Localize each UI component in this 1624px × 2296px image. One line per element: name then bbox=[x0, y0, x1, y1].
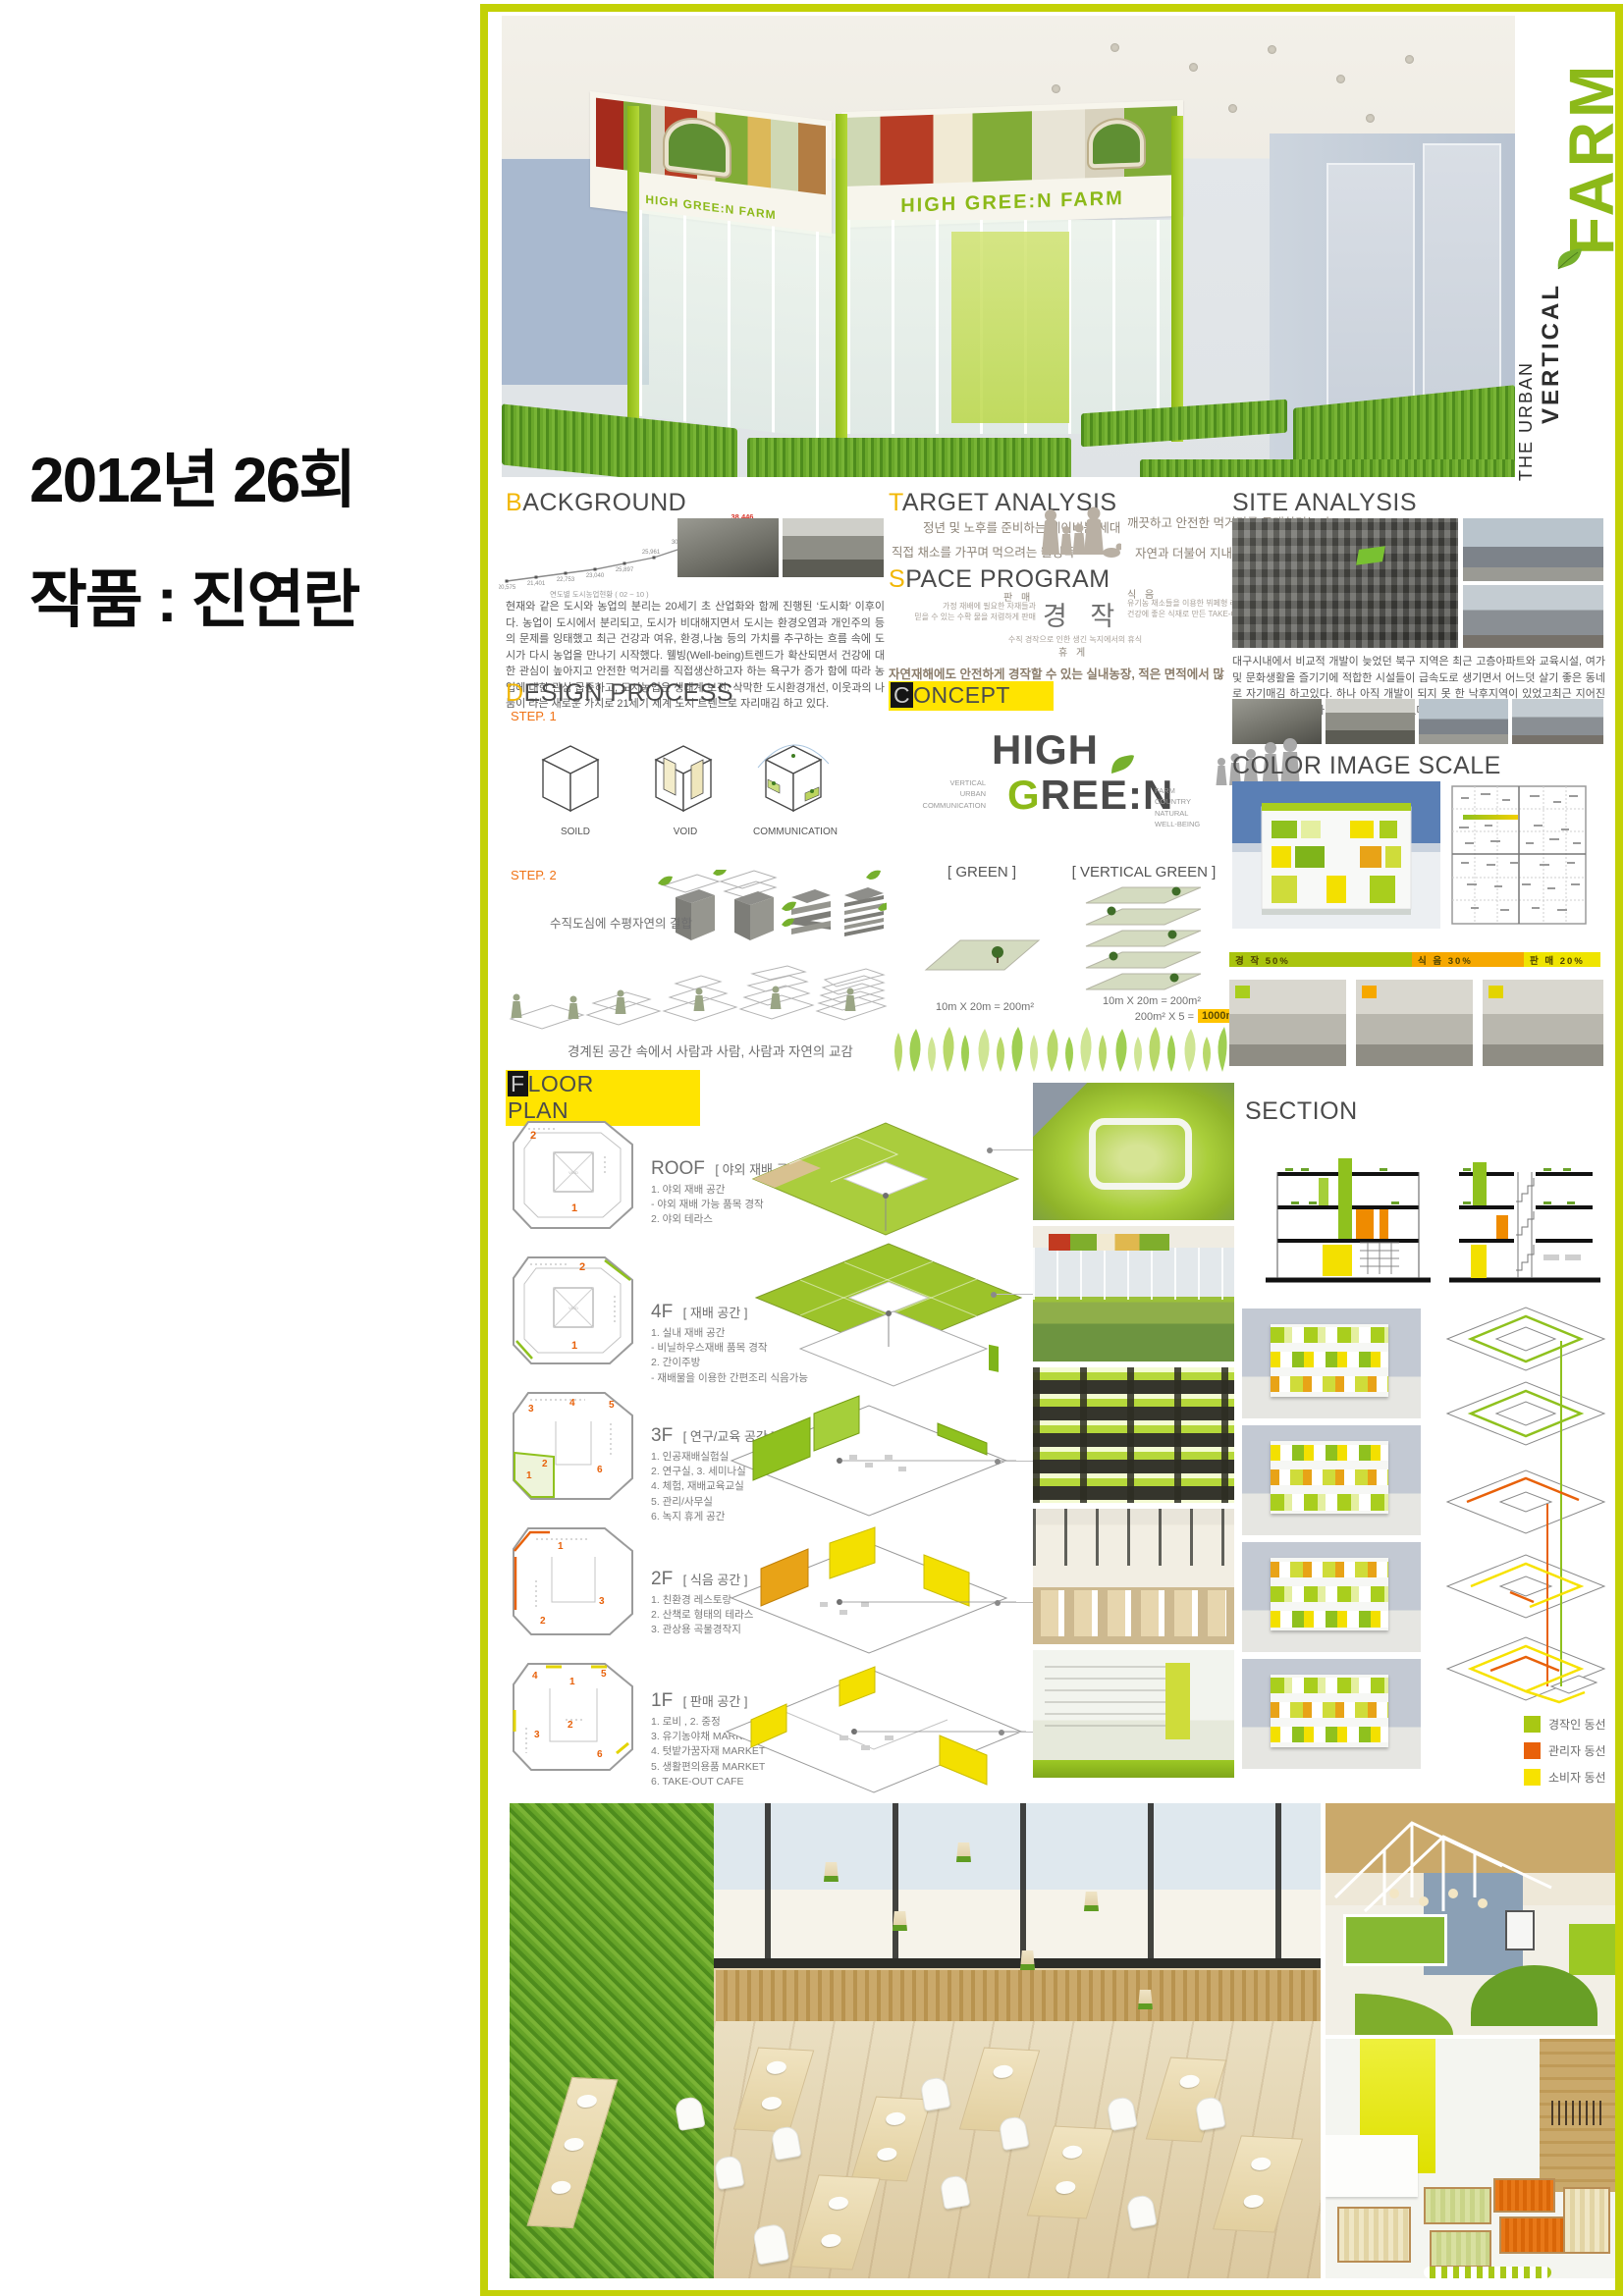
plan-4f: VOID 1 2 bbox=[507, 1253, 639, 1368]
pavilion-column bbox=[836, 114, 847, 454]
leaf-icon bbox=[1110, 754, 1135, 775]
section-drawing-b bbox=[1445, 1147, 1604, 1286]
urban-garden-photo bbox=[783, 518, 884, 577]
people-interaction-diagram bbox=[503, 964, 888, 1042]
green-formula: 10m X 20m = 200m² bbox=[921, 1001, 1049, 1013]
hero-render: HIGH GREE:N FARM HIGH GREE:N FARM bbox=[502, 16, 1515, 477]
plan-1f: 1 2 3 4 5 6 bbox=[507, 1659, 639, 1775]
render-exterior-pavilion bbox=[1033, 1226, 1234, 1362]
interior-thumb-cultivation bbox=[1229, 980, 1346, 1066]
render-restaurant-interior bbox=[1033, 1509, 1234, 1644]
green-plane-diagram bbox=[921, 913, 1044, 982]
wood-slat-band bbox=[716, 1970, 1321, 2021]
interior-thumb-market bbox=[1483, 980, 1603, 1066]
legend-label: 경작인 동선 bbox=[1548, 1716, 1606, 1733]
building-render-3 bbox=[1242, 1542, 1421, 1652]
svg-text:1: 1 bbox=[558, 1541, 564, 1552]
program-rest-label: 휴 게 bbox=[1058, 644, 1088, 659]
restaurant-render-large bbox=[510, 1803, 1321, 2278]
leader-line bbox=[998, 1461, 1033, 1462]
leader-line bbox=[1001, 1732, 1033, 1733]
step2-caption: 수직도심에 수평자연의 결합 bbox=[550, 913, 692, 932]
massing-diagram-step1 bbox=[509, 722, 887, 821]
white-counter bbox=[1326, 2135, 1418, 2197]
ratio-segment-cultivation: 경 작 50% bbox=[1229, 952, 1412, 967]
svg-text:1: 1 bbox=[569, 1677, 575, 1687]
produce-crate bbox=[1493, 2178, 1555, 2214]
svg-text:25,961: 25,961 bbox=[642, 550, 661, 556]
step2-label: STEP. 2 bbox=[511, 868, 557, 882]
render-vertical-farm-racks bbox=[1033, 1367, 1234, 1503]
produce-crate bbox=[1424, 2187, 1491, 2224]
svg-text:VOID: VOID bbox=[568, 1306, 578, 1310]
floor-name: 2F bbox=[651, 1569, 673, 1589]
svg-text:6: 6 bbox=[597, 1465, 603, 1475]
svg-text:4: 4 bbox=[569, 1398, 575, 1409]
concept-left-words: VERTICAL URBAN COMMUNICATION bbox=[895, 777, 986, 811]
svg-text:2: 2 bbox=[530, 1130, 536, 1142]
plan-roof: VOID 1 2 bbox=[507, 1117, 639, 1233]
svg-text:3: 3 bbox=[599, 1596, 605, 1607]
floor-name: 4F bbox=[651, 1302, 673, 1322]
svg-text:25,897: 25,897 bbox=[616, 567, 634, 573]
floor-name: 3F bbox=[651, 1425, 673, 1446]
salad-badge bbox=[1089, 119, 1144, 168]
axon-roof bbox=[729, 1105, 1043, 1253]
building-render-2 bbox=[1242, 1425, 1421, 1535]
legend-swatch-yellow bbox=[1524, 1769, 1541, 1786]
plan-3f: 1 2 3 4 5 6 bbox=[507, 1388, 639, 1504]
street-photo bbox=[1463, 585, 1603, 648]
program-ratio-bar: 경 작 50% 식 음 30% 판 매 20% bbox=[1229, 952, 1600, 967]
building-render-1 bbox=[1242, 1308, 1421, 1418]
section-heading: SECTION bbox=[1245, 1097, 1358, 1126]
svg-text:5: 5 bbox=[609, 1400, 615, 1411]
floor-name: 1F bbox=[651, 1690, 673, 1711]
vertical-green-label: [ VERTICAL GREEN ] bbox=[1065, 864, 1222, 881]
pavilion-column bbox=[627, 106, 639, 446]
old-district-photo bbox=[1326, 699, 1415, 744]
svg-text:22,753: 22,753 bbox=[557, 577, 575, 583]
svg-text:3: 3 bbox=[534, 1730, 540, 1740]
old-district-photo bbox=[1512, 699, 1603, 744]
site-marker bbox=[1356, 546, 1385, 564]
axon-1f bbox=[692, 1641, 1046, 1808]
white-truss bbox=[1326, 1803, 1615, 1941]
exhibition-year-title: 2012년 26회 bbox=[29, 430, 354, 520]
pavilion-glass-left bbox=[639, 210, 836, 441]
egg-row bbox=[1424, 2267, 1551, 2278]
svg-text:3: 3 bbox=[528, 1404, 534, 1415]
render-market-interior bbox=[1033, 1650, 1234, 1778]
program-sell-desc: 가정 재배에 필요한 자재들과 믿을 수 있는 수확 물을 저렴하게 판매 bbox=[889, 601, 1036, 622]
ratio-segment-market: 판 매 20% bbox=[1524, 952, 1600, 967]
svg-text:2: 2 bbox=[579, 1261, 585, 1273]
banner-text: HIGH GREE:N FARM bbox=[841, 186, 1183, 220]
legend-label: 관리자 동선 bbox=[1548, 1742, 1606, 1759]
produce-crate bbox=[1430, 2230, 1491, 2268]
svg-text:1: 1 bbox=[571, 1340, 577, 1352]
svg-text:23,040: 23,040 bbox=[586, 573, 605, 579]
step1-label: STEP. 1 bbox=[511, 709, 557, 723]
color-image-scale-heading: COLOR IMAGE SCALE bbox=[1232, 752, 1501, 780]
plan-2f: 1 2 3 bbox=[507, 1523, 639, 1639]
street-photo bbox=[1463, 518, 1603, 581]
svg-text:4: 4 bbox=[532, 1671, 538, 1682]
leader-line bbox=[994, 1294, 1033, 1295]
circulation-exploded-diagram bbox=[1432, 1298, 1620, 1710]
concept-right-words: FARM COUNTRY NATURAL WELL-BEING bbox=[1155, 785, 1200, 829]
axon-4f bbox=[731, 1239, 1046, 1391]
floor-name: ROOF bbox=[651, 1158, 705, 1179]
poster-page: 2012년 26회 작품 : 진연란 HIGH GREE:N FARM HIGH… bbox=[0, 0, 1624, 2296]
hero-pavilion: HIGH GREE:N FARM HIGH GREE:N FARM bbox=[627, 106, 1183, 446]
step1-item-communication: COMMUNICATION bbox=[746, 827, 844, 837]
grass-bed bbox=[1140, 459, 1515, 477]
legend-row-consumer: 소비자 동선 bbox=[1524, 1769, 1606, 1786]
color-image-scale-chart bbox=[1451, 785, 1587, 925]
section-drawing-a bbox=[1262, 1147, 1434, 1286]
roof-courtyard-ring bbox=[1089, 1118, 1191, 1190]
side-title-the-urban: THE URBAN bbox=[1516, 324, 1537, 481]
space-program-heading: SPACE PROGRAM bbox=[889, 565, 1110, 594]
svg-text:6: 6 bbox=[597, 1749, 603, 1760]
color-scale-building-render bbox=[1232, 781, 1440, 929]
legend-swatch-green bbox=[1524, 1716, 1541, 1733]
family-silhouette-icon bbox=[1037, 507, 1121, 563]
produce-crate bbox=[1499, 2216, 1567, 2254]
background-heading: BACKGROUND bbox=[506, 489, 686, 517]
site-aerial-photo bbox=[1232, 518, 1458, 648]
goods-shelf bbox=[1337, 2207, 1411, 2264]
svg-text:VOID: VOID bbox=[568, 1170, 578, 1175]
leaves-border bbox=[889, 1027, 1230, 1072]
design-process-heading: DESIGN PROCESS bbox=[506, 679, 733, 708]
leader-line bbox=[998, 1602, 1033, 1603]
work-author-title: 작품 : 진연란 bbox=[29, 550, 358, 640]
step1-item-solid: SOILD bbox=[546, 827, 605, 837]
step2-caption-2: 경계된 공간 속에서 사람과 사람, 사람과 자연의 교감 bbox=[568, 1041, 853, 1060]
color-chip-green bbox=[1235, 986, 1250, 998]
svg-text:5: 5 bbox=[601, 1669, 607, 1680]
interior-thumb-dining bbox=[1356, 980, 1473, 1066]
render-roof-aerial bbox=[1033, 1083, 1234, 1220]
bottle-shelf bbox=[1551, 2101, 1603, 2124]
legend-row-manager: 관리자 동선 bbox=[1524, 1742, 1606, 1759]
concept-logo-green: GREE:N bbox=[1007, 772, 1173, 819]
grass-mound bbox=[1355, 1994, 1453, 2035]
svg-text:2: 2 bbox=[542, 1459, 548, 1469]
legend-row-farmer: 경작인 동선 bbox=[1524, 1716, 1606, 1733]
concept-heading: CONCEPT bbox=[889, 681, 1054, 711]
side-title-vertical: VERTICAL bbox=[1538, 251, 1565, 424]
site-analysis-heading: SITE ANALYSIS bbox=[1232, 489, 1417, 517]
program-center-label: 경 작 bbox=[1043, 595, 1122, 633]
ratio-segment-dining: 식 음 30% bbox=[1412, 952, 1524, 967]
color-chip-orange bbox=[1362, 986, 1377, 998]
green-label: [ GREEN ] bbox=[913, 864, 1051, 881]
pavilion-column bbox=[1171, 116, 1183, 442]
grass-bed bbox=[747, 438, 1071, 477]
axon-3f bbox=[692, 1372, 1036, 1529]
legend-swatch-orange bbox=[1524, 1742, 1541, 1759]
svg-text:2: 2 bbox=[568, 1720, 573, 1731]
concept-logo-high: HIGH bbox=[992, 726, 1099, 774]
market-render bbox=[1326, 2039, 1615, 2278]
tower-stacking-diagram bbox=[656, 870, 887, 948]
pavilion-inner-green-panel bbox=[951, 232, 1069, 423]
svg-text:21,401: 21,401 bbox=[527, 581, 546, 587]
building-mosaic bbox=[1232, 781, 1440, 929]
color-chip-yellow bbox=[1489, 986, 1503, 998]
leader-line bbox=[990, 1149, 1033, 1150]
old-district-photo bbox=[1419, 699, 1508, 744]
vertical-green-diagram bbox=[1078, 881, 1216, 991]
vgreen-formula-1: 10m X 20m = 200m² bbox=[1078, 995, 1225, 1007]
svg-text:1: 1 bbox=[526, 1470, 532, 1481]
pavilion-banner-front: HIGH GREE:N FARM bbox=[841, 100, 1183, 228]
step1-item-void: VOID bbox=[656, 827, 715, 837]
svg-text:20,575: 20,575 bbox=[499, 585, 516, 591]
produce-crate bbox=[1563, 2187, 1610, 2253]
legend-label: 소비자 동선 bbox=[1548, 1769, 1606, 1786]
vgreen-formula-2: 200m² X 5 = bbox=[1066, 1011, 1194, 1023]
farm-field-photo bbox=[677, 518, 779, 577]
building-render-4 bbox=[1242, 1659, 1421, 1769]
svg-text:2: 2 bbox=[540, 1616, 546, 1627]
greenhouse-render bbox=[1326, 1803, 1615, 2035]
side-title-farm: FARM bbox=[1555, 31, 1624, 255]
svg-text:1: 1 bbox=[571, 1202, 577, 1214]
